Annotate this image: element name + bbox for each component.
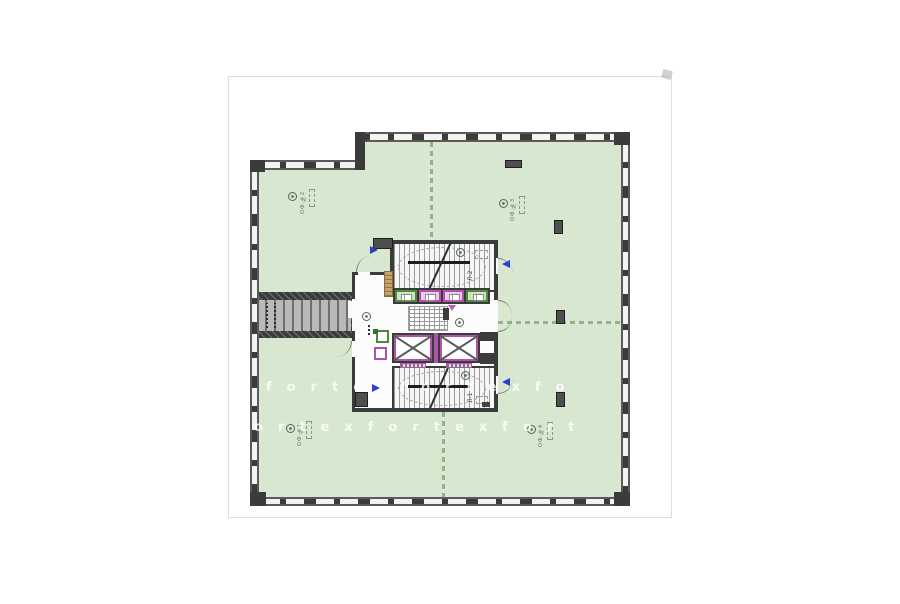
room-3-label: ОФ.№3 <box>511 191 517 221</box>
wall-left <box>250 160 259 506</box>
wall-top-right <box>358 132 628 142</box>
cubicle-pointer-icon <box>448 305 456 311</box>
room-1-label: ОФ.№1 <box>298 416 304 446</box>
stair-lower-label: Л-1 <box>468 379 474 403</box>
fixture-magenta <box>374 347 387 360</box>
room-3-area-box <box>519 196 525 214</box>
cubicle-magenta-1 <box>419 290 441 302</box>
wall-corner-tl <box>250 160 265 172</box>
cubicle-green-1 <box>395 290 417 302</box>
furniture-block-4 <box>556 310 565 324</box>
furniture-block-5 <box>355 392 368 407</box>
entrance-arrow-bottom-left-icon <box>372 384 380 392</box>
lobby-symbol-icon <box>455 318 464 327</box>
room-4-symbol-icon <box>527 425 536 434</box>
furniture-block-2 <box>505 160 522 168</box>
elevator-side-wall-b <box>480 353 494 364</box>
elevator-door-2 <box>446 363 472 368</box>
stair-upper-symbol-icon <box>456 248 465 257</box>
entrance-arrow-bottom-right-icon <box>502 378 510 386</box>
room-2-symbol-icon <box>288 192 297 201</box>
lobby-schedule-grid <box>408 306 448 331</box>
left-stair-treads <box>256 300 351 331</box>
cubicle-tag <box>401 294 412 301</box>
corridor-annotation-2 <box>274 303 276 328</box>
fixture-green-corner <box>373 329 378 334</box>
furniture-block-6 <box>556 392 565 407</box>
room-office-4-left <box>445 412 498 497</box>
elevator-door-1 <box>400 363 426 368</box>
room-3-symbol-icon <box>499 199 508 208</box>
stair-upper-label: Л-2 <box>468 257 474 281</box>
room-4-label: ОФ.№4 <box>539 417 545 447</box>
cubicle-tag <box>473 294 484 301</box>
wall-right <box>621 132 630 506</box>
vestibule-wall-left-a <box>352 272 355 299</box>
partition-bottom-vertical <box>442 412 445 497</box>
elevator-side-wall-a <box>480 332 494 341</box>
vestibule-wall-left-b <box>352 331 355 341</box>
cubicle-green-2 <box>466 290 488 302</box>
entrance-arrow-top-left-icon <box>370 246 378 254</box>
wall-bottom <box>250 497 630 506</box>
room-4-area-box <box>547 422 553 440</box>
lobby-riser-block <box>443 308 449 320</box>
room-2-area-box <box>309 189 315 207</box>
floor-plan-canvas: Л-2 Л-1 <box>0 0 900 604</box>
partition-top-vertical <box>430 142 433 241</box>
cubicle-magenta-2 <box>443 290 465 302</box>
cubicle-tag <box>449 294 460 301</box>
wall-corner-tr <box>614 132 630 145</box>
wall-step <box>355 132 365 170</box>
wall-top-left <box>250 160 362 170</box>
stair-lower-equipment <box>482 402 490 407</box>
room-office-2-upper <box>365 142 432 172</box>
furniture-block-3 <box>554 220 563 234</box>
room-2-label: ОФ.№2 <box>301 184 307 214</box>
room-1-symbol-icon <box>286 424 295 433</box>
vestibule-symbol-icon <box>362 312 371 321</box>
cabinet-wood <box>384 271 393 297</box>
stair-upper-note-box <box>475 250 488 259</box>
wall-corner-br <box>614 492 630 506</box>
room-1-area-box <box>306 421 312 439</box>
cubicle-row <box>393 288 490 304</box>
room-office-4 <box>498 322 621 497</box>
entrance-arrow-top-right-icon <box>502 260 510 268</box>
corridor-annotation-1 <box>266 303 268 328</box>
wall-corner-bl <box>250 492 266 506</box>
cubicle-tag <box>425 294 436 301</box>
vestibule-annotation <box>368 323 370 335</box>
